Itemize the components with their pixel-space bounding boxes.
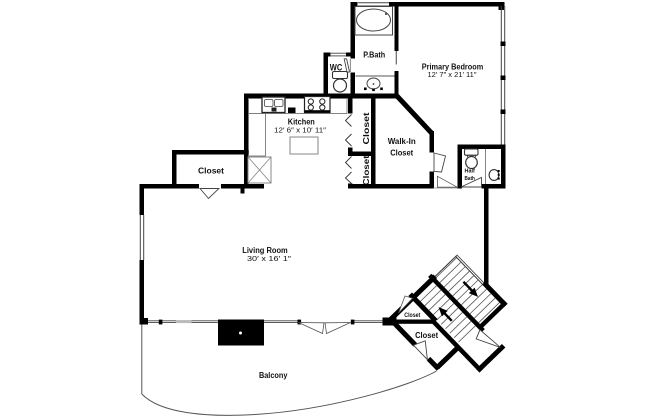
svg-text:Closet: Closet (415, 331, 438, 340)
svg-text:Half: Half (465, 169, 475, 175)
svg-text:Bath: Bath (465, 176, 476, 182)
svg-text:Balcony: Balcony (259, 370, 288, 380)
svg-text:Closet: Closet (198, 165, 224, 175)
svg-text:Closet: Closet (362, 155, 371, 185)
svg-text:12′ 7″ x 21′ 11″: 12′ 7″ x 21′ 11″ (428, 70, 477, 79)
svg-text:P.Bath: P.Bath (363, 49, 385, 59)
svg-text:30′ x 16′ 1″: 30′ x 16′ 1″ (247, 254, 291, 263)
svg-text:Closet: Closet (404, 312, 421, 319)
svg-text:WC: WC (330, 62, 343, 72)
svg-text:12′ 6″ x 10′ 11″: 12′ 6″ x 10′ 11″ (274, 125, 326, 134)
svg-text:Closet: Closet (362, 112, 371, 144)
svg-text:Closet: Closet (390, 149, 413, 158)
svg-text:Walk-In: Walk-In (388, 137, 416, 146)
